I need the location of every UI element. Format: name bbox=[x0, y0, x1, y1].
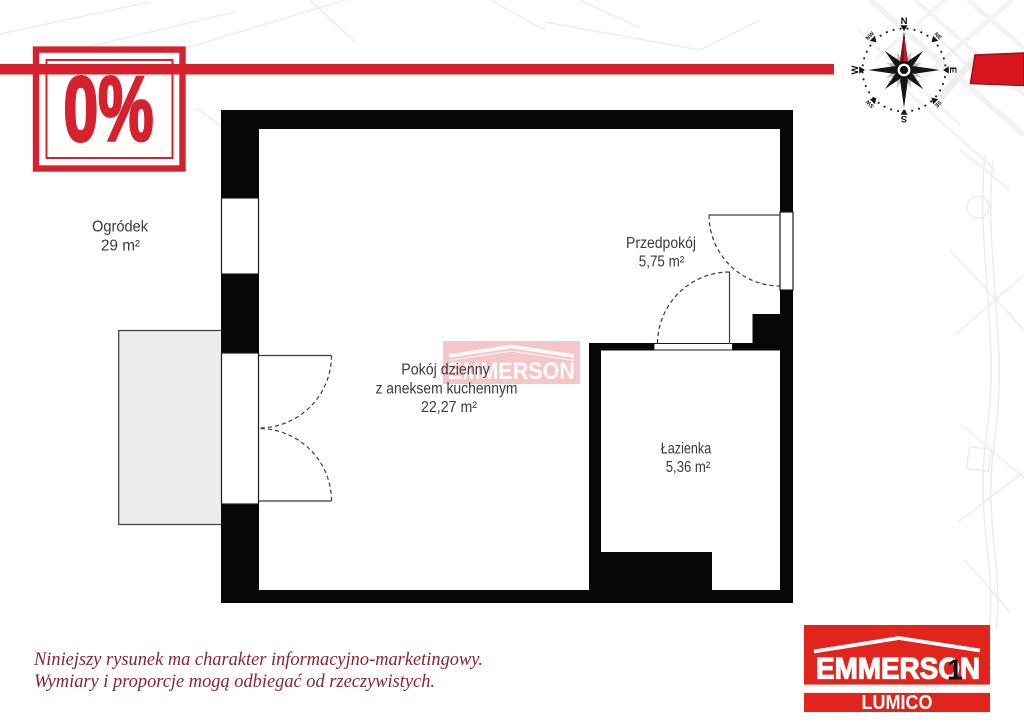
svg-text:W: W bbox=[850, 65, 861, 74]
svg-text:Ogródek: Ogródek bbox=[92, 219, 148, 236]
svg-text:5,75 m²: 5,75 m² bbox=[639, 254, 685, 271]
svg-text:Łazienka: Łazienka bbox=[661, 441, 712, 458]
svg-text:Przedpokój: Przedpokój bbox=[626, 235, 696, 252]
svg-text:0%: 0% bbox=[64, 59, 154, 161]
svg-text:1: 1 bbox=[947, 655, 963, 687]
svg-text:5,36 m²: 5,36 m² bbox=[666, 459, 711, 476]
svg-text:N: N bbox=[901, 16, 908, 27]
svg-text:22,27 m²: 22,27 m² bbox=[421, 399, 477, 416]
svg-text:E: E bbox=[947, 67, 958, 73]
svg-text:Wymiary i proporcje mogą odbie: Wymiary i proporcje mogą odbiegać od rze… bbox=[34, 671, 435, 692]
svg-text:z aneksem kuchennym: z aneksem kuchennym bbox=[376, 381, 518, 398]
svg-text:29 m²: 29 m² bbox=[101, 238, 140, 255]
svg-text:Pokój dzienny: Pokój dzienny bbox=[401, 362, 490, 379]
svg-text:S: S bbox=[901, 113, 907, 124]
svg-text:LUMICO: LUMICO bbox=[862, 691, 933, 714]
svg-text:Niniejszy rysunek ma charakter: Niniejszy rysunek ma charakter informacy… bbox=[33, 649, 483, 670]
